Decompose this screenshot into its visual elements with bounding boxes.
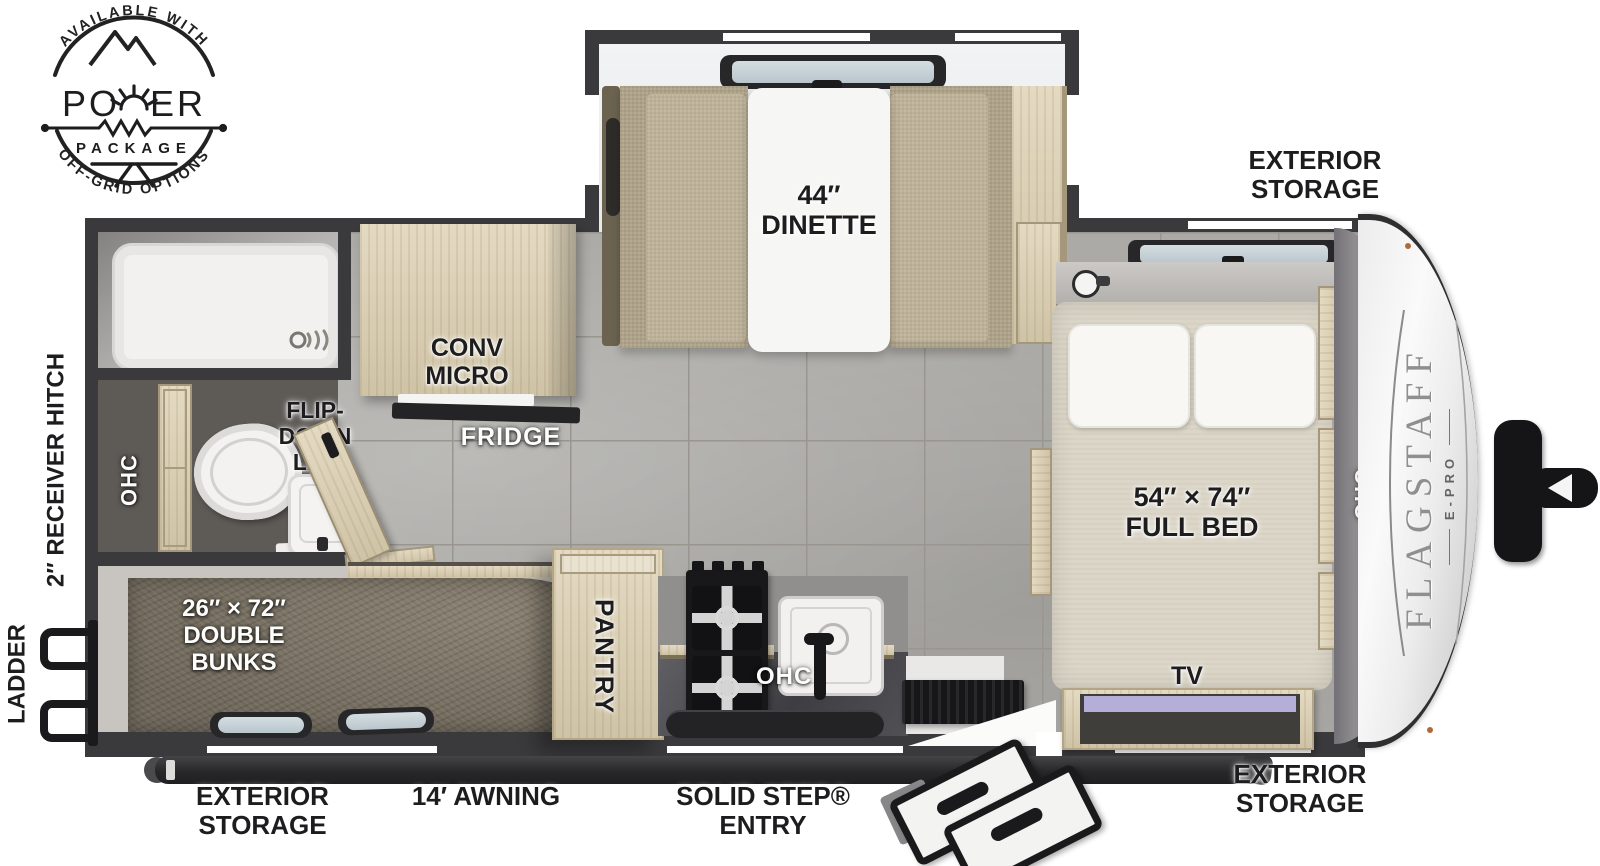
faucet-spout-icon — [804, 633, 834, 645]
bath-ohc-door-1 — [163, 389, 187, 469]
hitch-coupler-icon — [1494, 420, 1542, 562]
cooktop-knob-3 — [732, 561, 744, 571]
bed-window-strip — [1188, 221, 1352, 229]
burner-1-icon — [692, 586, 762, 650]
bath-ohc-text: OHC — [118, 454, 143, 506]
tv-screen-icon — [1084, 696, 1296, 712]
bunk-window-2-glass — [346, 712, 427, 731]
reading-light-base — [1096, 276, 1110, 286]
double-bunks-label: 26″ × 72″ DOUBLE BUNKS — [150, 596, 318, 677]
pillow-left — [1068, 324, 1190, 428]
pantry-text: PANTRY — [589, 599, 618, 715]
ladder-text: LADDER — [5, 624, 32, 724]
lav-faucet-icon — [317, 537, 328, 551]
ladder-bracket-top-icon — [40, 628, 92, 670]
awning-left-bracket — [166, 760, 175, 780]
bunk-front-rail — [348, 562, 558, 577]
tv-label: TV — [1156, 662, 1218, 690]
conv-micro-label: CONV MICRO — [377, 334, 557, 390]
ladder-bracket-bottom-icon — [40, 700, 92, 742]
counter-tray-icon — [666, 710, 884, 738]
dinette-left-armrest-icon — [606, 118, 620, 216]
dinette-top-window-strip-1 — [723, 33, 870, 41]
pantry-top-panel — [560, 554, 656, 574]
solid-step-entry-label: SOLID STEP® ENTRY — [650, 782, 876, 840]
shower-head-icon — [286, 326, 338, 368]
entry-door-gap — [1036, 732, 1062, 757]
dinette-left-window-gap — [585, 95, 599, 185]
brand-rule-left — [1449, 529, 1450, 565]
pillow-right — [1194, 324, 1316, 428]
pantry-label: PANTRY — [589, 599, 618, 721]
dinette-label: 44″ DINETTE — [729, 180, 909, 240]
badge-package-text: PACKAGE — [76, 140, 192, 157]
exterior-storage-bottom-left-label: EXTERIOR STORAGE — [150, 782, 375, 840]
brand-rule-right — [1449, 409, 1450, 445]
kitchen-ohc-label: OHC — [756, 664, 812, 691]
exterior-storage-top-right-label: EXTERIOR STORAGE — [1205, 146, 1425, 204]
awning-label: 14′ AWNING — [378, 782, 594, 811]
bunk-window-1-glass — [218, 717, 304, 733]
badge-power-left: PO — [62, 83, 120, 124]
mountain-icon — [90, 32, 155, 65]
bath-divider-wall — [98, 368, 351, 380]
fridge-label: FRIDGE — [450, 423, 572, 451]
brand-logo: FLAGSTAFF E-PRO — [1395, 277, 1459, 697]
brand-sub: E-PRO — [1442, 454, 1457, 520]
bath-ohc-cabinet — [158, 384, 192, 552]
dinette-top-window-strip-2 — [955, 33, 1061, 41]
brand-sub-row: E-PRO — [1442, 409, 1457, 565]
bath-ohc-door-2 — [163, 467, 187, 547]
receiver-hitch-text: 2″ RECEIVER HITCH — [44, 353, 71, 587]
exterior-storage-bottom-right-label: EXTERIOR STORAGE — [1190, 760, 1410, 818]
bottom-window-strip-1 — [207, 746, 437, 753]
cooktop-knob-1 — [692, 561, 704, 571]
power-package-badge: AVAILABLE WITH OFF-GRID OPTIONS PO ER PA… — [28, 2, 240, 200]
full-bed-label: 54″ × 74″ FULL BED — [1072, 482, 1312, 542]
cooktop-knob-2 — [712, 561, 724, 571]
bath-bottom-wall — [85, 552, 350, 566]
bath-right-wall — [338, 218, 351, 380]
faucet-body-icon — [814, 640, 826, 700]
door-handle-icon — [320, 431, 340, 459]
bed-side-trim — [1030, 448, 1052, 596]
awning-roller — [155, 756, 1265, 784]
cooktop-knob-4 — [752, 561, 764, 571]
dinette-right-window-gap — [1065, 95, 1079, 185]
floorplan-canvas: AVAILABLE WITH OFF-GRID OPTIONS PO ER PA… — [0, 0, 1600, 866]
bottom-window-strip-2 — [667, 746, 903, 753]
brand-name: FLAGSTAFF — [1398, 344, 1441, 630]
badge-power-right: ER — [150, 83, 206, 124]
step-2-slot — [989, 806, 1045, 844]
